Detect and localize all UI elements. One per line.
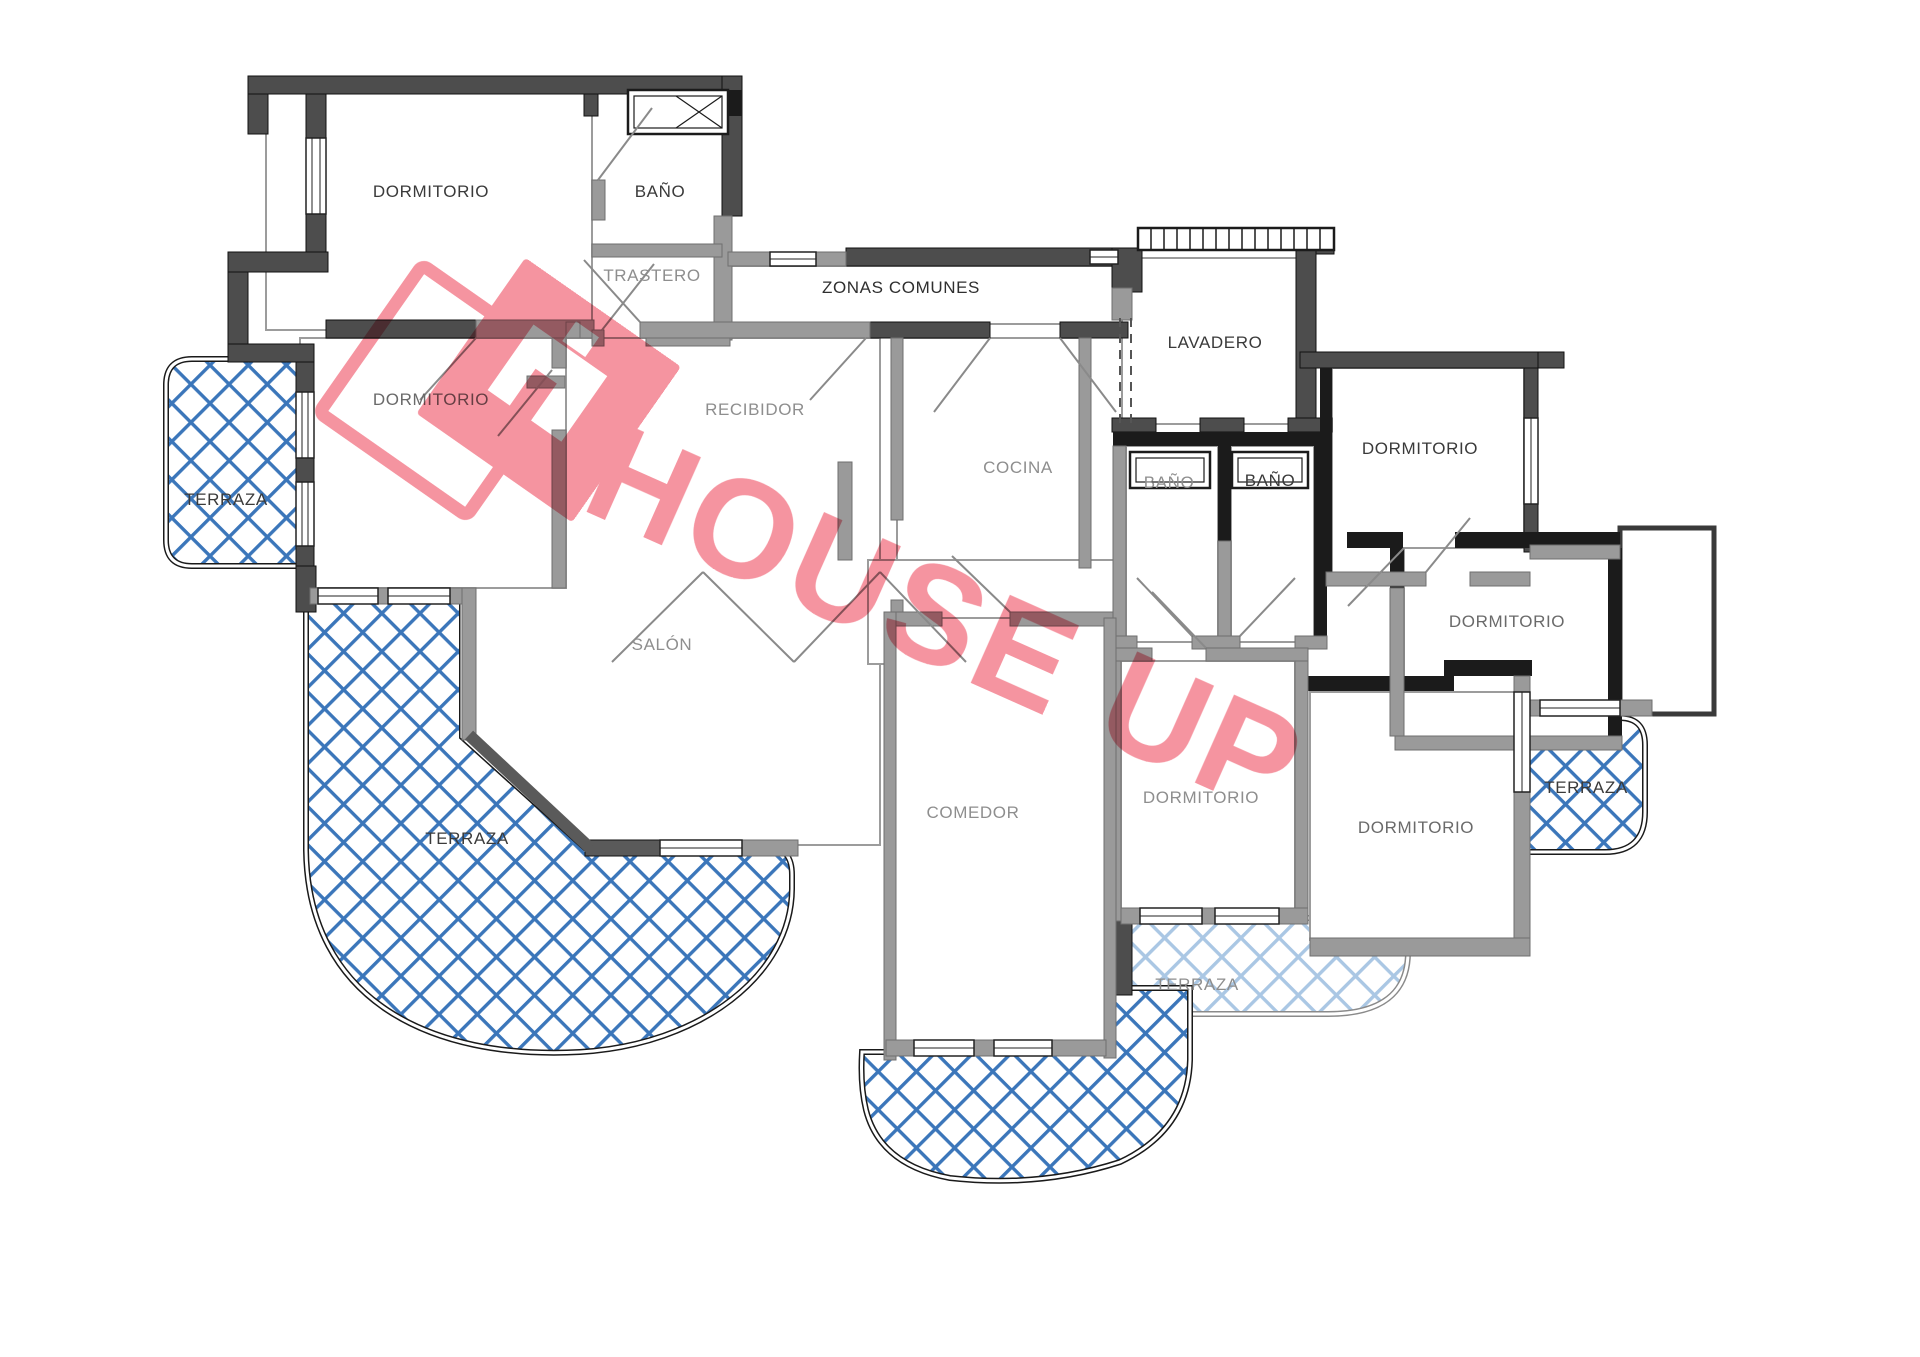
window-glyph	[770, 252, 816, 266]
room-label-cocina: COCINA	[983, 458, 1053, 477]
window-glyph	[318, 588, 378, 604]
room-label-comedor: COMEDOR	[927, 803, 1020, 822]
window-glyph	[296, 482, 314, 546]
room-label-terraza-izquierda: TERRAZA	[184, 490, 268, 509]
room-dormitorio-6	[1310, 692, 1516, 940]
window-glyph	[296, 392, 314, 458]
room-label-dormitorio-1: DORMITORIO	[373, 182, 489, 201]
room-stairwell	[1620, 528, 1714, 714]
room-label-zonas-comunes: ZONAS COMUNES	[822, 278, 980, 297]
terrace-left-hatch	[166, 359, 310, 566]
window-glyph	[388, 588, 450, 604]
window-glyph	[306, 138, 326, 214]
room-label-lavadero: LAVADERO	[1168, 333, 1263, 352]
window-glyph	[1540, 700, 1620, 716]
room-label-dormitorio-4: DORMITORIO	[1449, 612, 1565, 631]
window-glyph	[914, 1040, 974, 1056]
window-glyph	[994, 1040, 1052, 1056]
room-label-terraza-central: TERRAZA	[1155, 975, 1239, 994]
room-label-bano-2: BAÑO	[1144, 473, 1195, 492]
room-label-terraza-grande: TERRAZA	[425, 829, 509, 848]
room-label-bano-1: BAÑO	[635, 182, 686, 201]
window-glyph	[1514, 692, 1530, 792]
window-glyph	[1140, 908, 1202, 924]
room-label-trastero: TRASTERO	[603, 266, 700, 285]
floor-plan-svg: DORMITORIO BAÑO TRASTERO ZONAS COMUNES D…	[0, 0, 1920, 1357]
room-label-bano-3: BAÑO	[1245, 471, 1296, 490]
room-label-salon: SALÓN	[632, 635, 693, 654]
room-label-dormitorio-6: DORMITORIO	[1358, 818, 1474, 837]
railing-glyph	[1138, 228, 1334, 250]
window-glyph	[1090, 250, 1118, 264]
floor-plan-page: DORMITORIO BAÑO TRASTERO ZONAS COMUNES D…	[0, 0, 1920, 1357]
window-glyph	[1215, 908, 1279, 924]
window-glyph	[660, 840, 742, 856]
window-glyph	[1524, 418, 1538, 504]
room-label-dormitorio-3: DORMITORIO	[1362, 439, 1478, 458]
room-label-terraza-derecha: TERRAZA	[1544, 778, 1628, 797]
room-label-recibidor: RECIBIDOR	[705, 400, 805, 419]
